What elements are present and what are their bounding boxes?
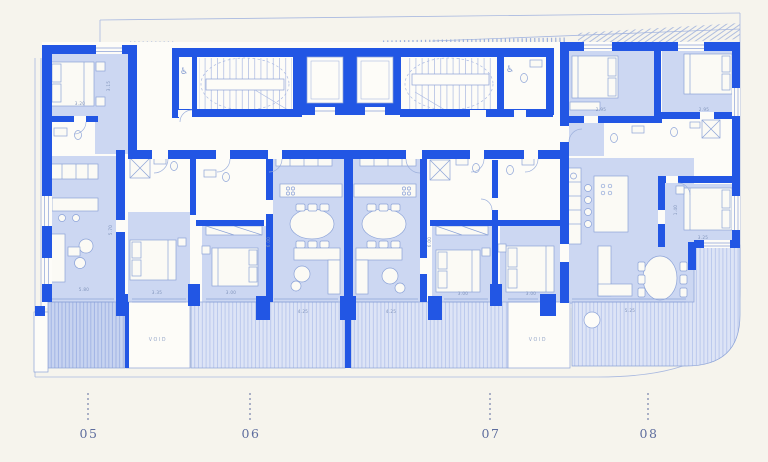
kitchen-counter xyxy=(50,164,98,179)
dimension-label: 6.00 xyxy=(266,237,271,248)
accessible-icon: ♿ xyxy=(180,67,188,77)
dimension-label: 6.00 xyxy=(427,237,432,248)
terrace-planter xyxy=(584,312,600,328)
floor-plan: 3.20 3.15 5.70 5.80 4.25 4.25 6.00 6.00 … xyxy=(0,0,768,462)
dimension-label: 3.35 xyxy=(152,290,163,295)
unit-number: 05 xyxy=(80,426,99,441)
void-label: VOID xyxy=(529,337,547,343)
kitchen-island xyxy=(52,198,98,211)
dimension-label: 2.95 xyxy=(699,107,710,112)
dimension-label: 3.00 xyxy=(526,291,537,296)
sofa xyxy=(294,248,340,260)
void-label: VOID xyxy=(149,337,167,343)
dimension-label: 3.15 xyxy=(106,81,111,92)
dining-table xyxy=(643,256,677,300)
dimension-label: 4.25 xyxy=(386,309,397,314)
void-area-2 xyxy=(508,302,570,368)
dimension-label: 4.25 xyxy=(298,309,309,314)
staircase-left xyxy=(199,58,292,110)
coffee-table xyxy=(68,247,80,256)
wardrobe xyxy=(206,226,262,235)
dining-table xyxy=(290,209,334,239)
dimension-label: 3.00 xyxy=(458,291,469,296)
accessible-icon: ♿ xyxy=(506,65,514,75)
dimension-label: 5.80 xyxy=(79,287,90,292)
dimension-label: 1.40 xyxy=(673,205,678,216)
dimension-label: 2.95 xyxy=(596,107,607,112)
dimension-label: 3.20 xyxy=(75,101,86,106)
kitchen-island xyxy=(280,184,342,197)
floor-plan-image: 3.20 3.15 5.70 5.80 4.25 4.25 6.00 6.00 … xyxy=(0,0,768,462)
dimension-label: 5.70 xyxy=(108,225,113,236)
unit-number: 07 xyxy=(482,426,501,441)
dimension-label: 3.00 xyxy=(226,290,237,295)
sink xyxy=(54,128,67,136)
staircase-right xyxy=(404,58,496,110)
dimension-label: 3.25 xyxy=(698,235,709,240)
void-area-1 xyxy=(126,302,190,368)
sofa xyxy=(50,234,65,282)
kitchen-island xyxy=(354,184,416,197)
boundary-pier xyxy=(34,312,48,372)
dimension-label: 5.25 xyxy=(625,308,636,313)
sofa xyxy=(356,248,402,260)
dining-table xyxy=(362,209,406,239)
wardrobe xyxy=(436,226,488,235)
unit-number: 06 xyxy=(242,426,261,441)
terrace-unit-05 xyxy=(48,302,125,368)
unit-number: 08 xyxy=(640,426,659,441)
